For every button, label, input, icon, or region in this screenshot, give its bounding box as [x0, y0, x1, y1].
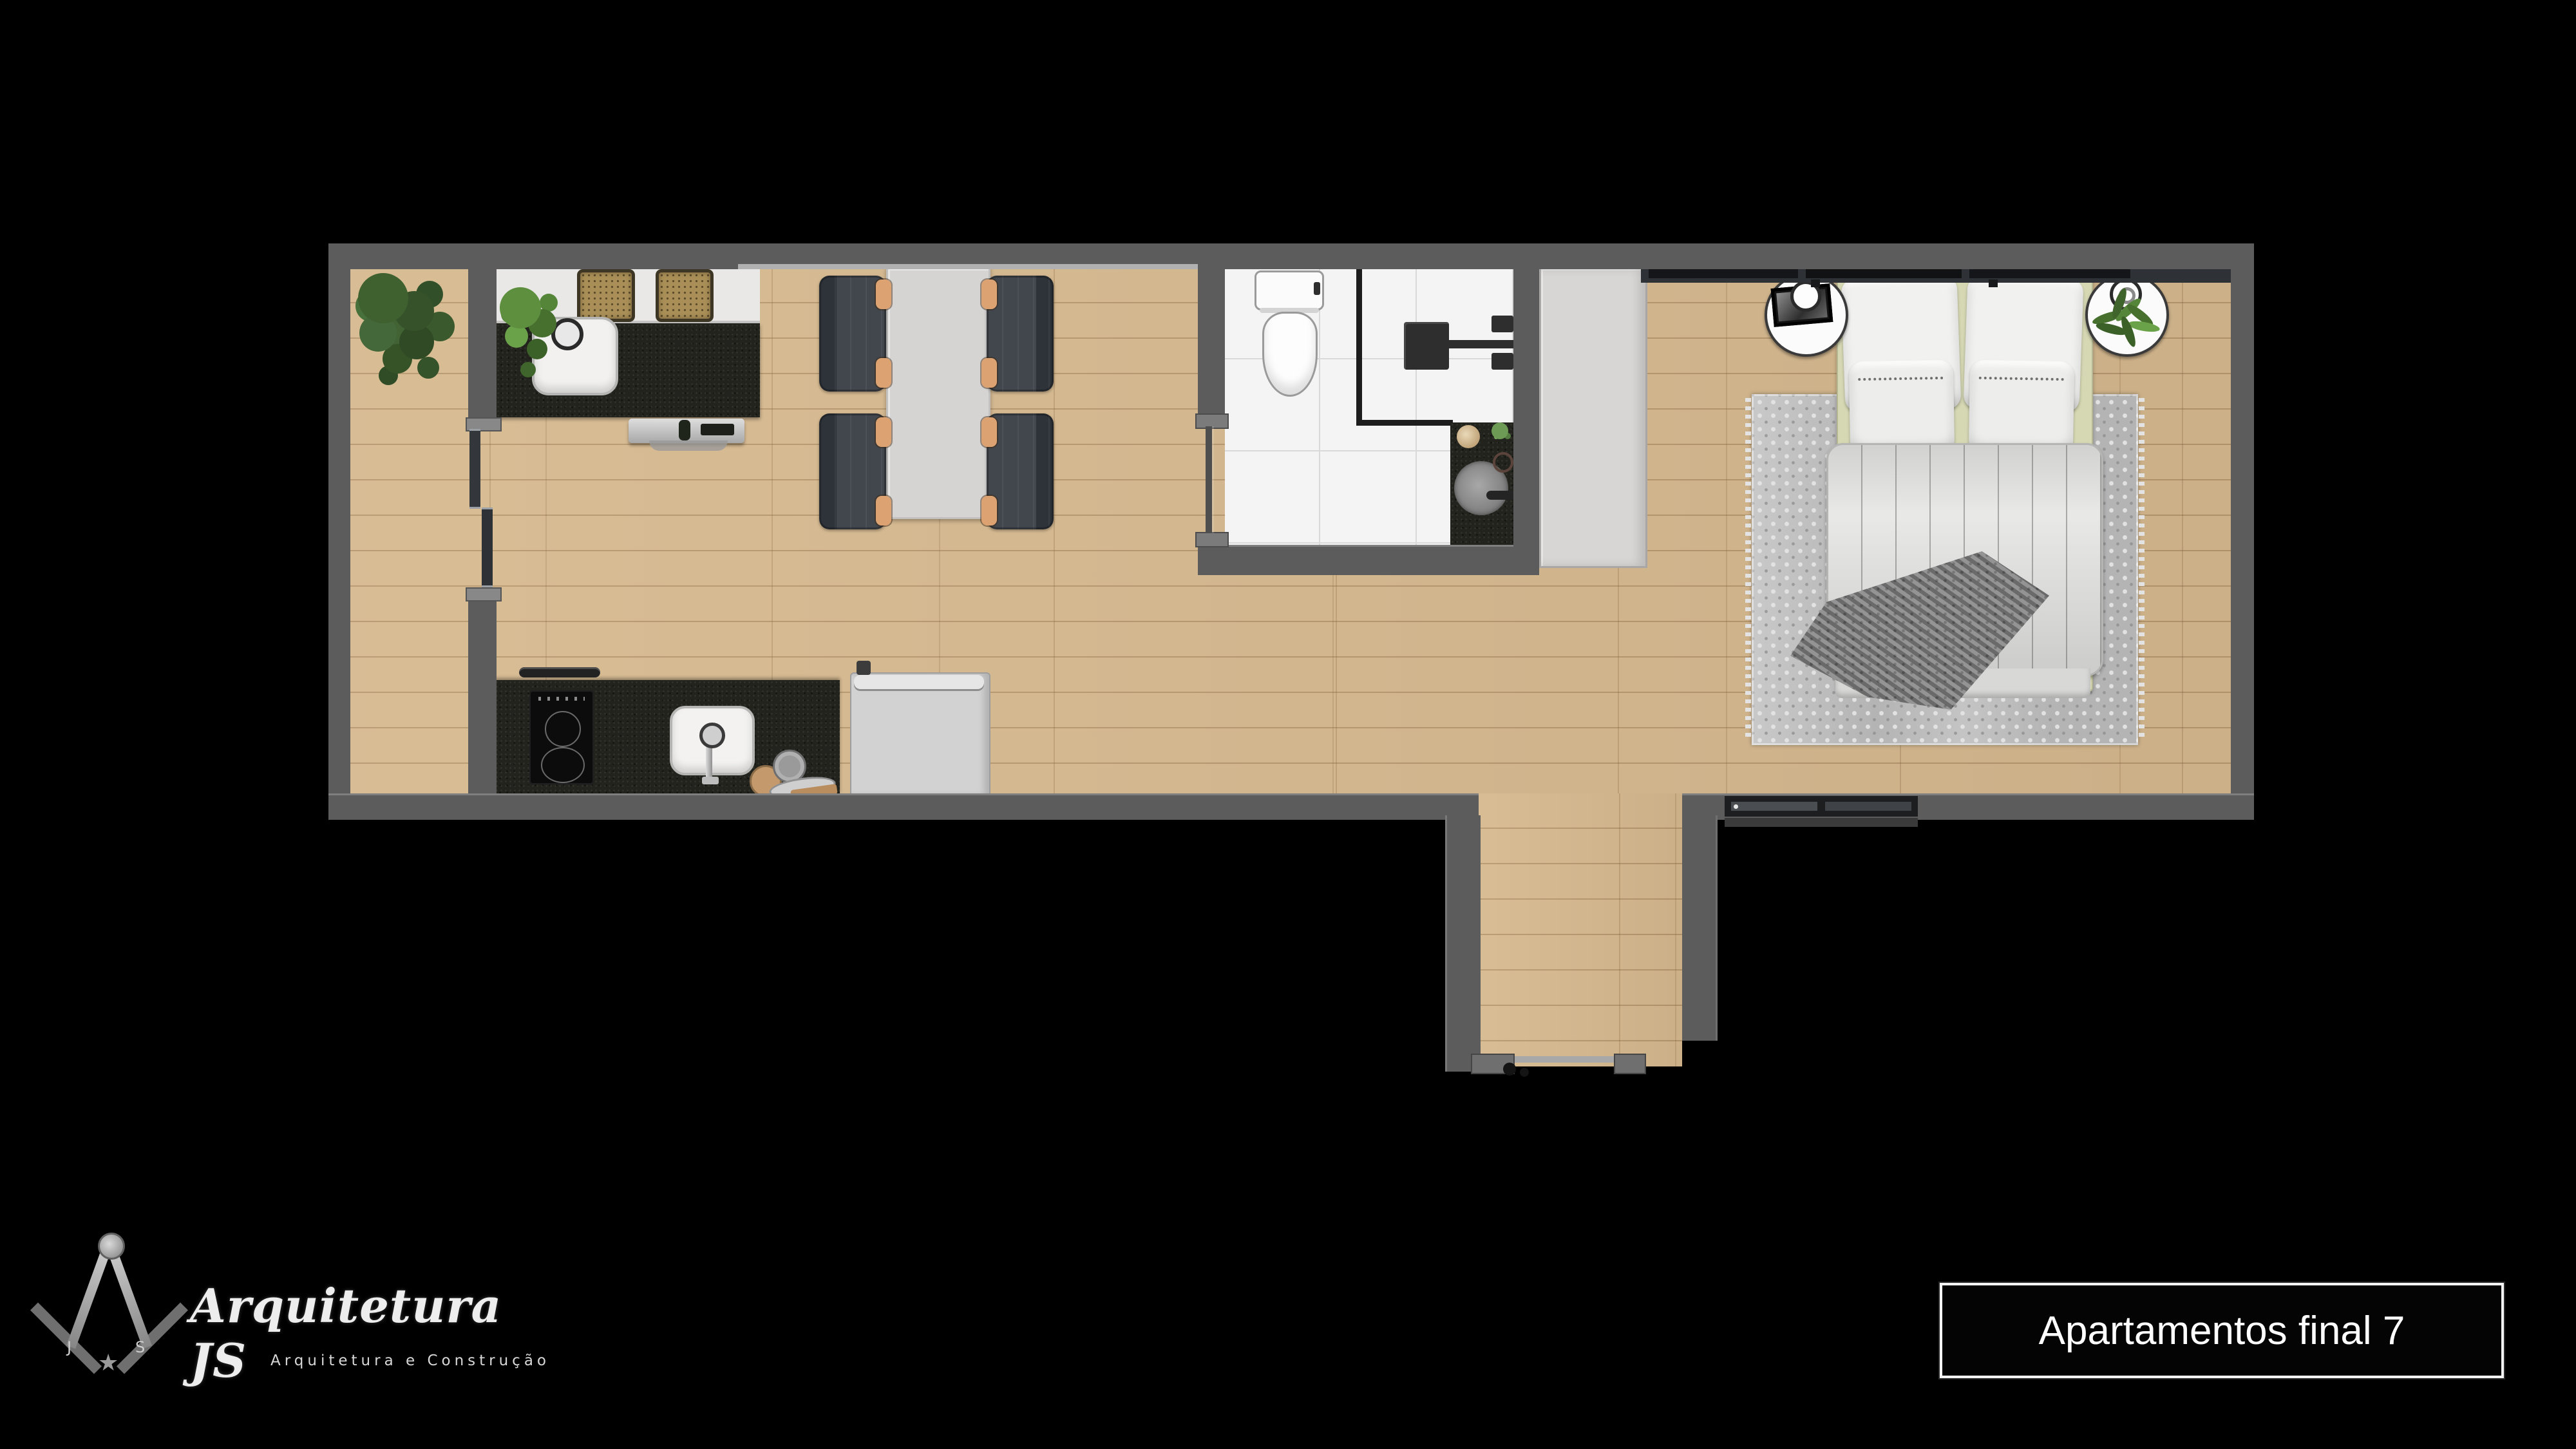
pillow-small [1969, 360, 2075, 456]
chair-armrest [876, 279, 891, 309]
hood-controls [701, 424, 734, 435]
chair-armrest [981, 496, 997, 526]
wall-top [328, 243, 2254, 269]
toilet [1255, 270, 1324, 397]
sill-line [738, 264, 1198, 269]
corridor-wall-right [1682, 815, 1718, 1041]
brand-name: Arquitetura JS [190, 1278, 551, 1388]
rug-fringe [2139, 398, 2145, 741]
wardrobe [1539, 267, 1647, 568]
hood-bottle [679, 420, 690, 440]
chair-armrest [876, 496, 891, 526]
island-faucet [551, 318, 583, 350]
compass-leg-icon [66, 1244, 113, 1349]
burner [545, 711, 581, 747]
refrigerator [850, 672, 990, 797]
cooktop-controls [538, 697, 585, 701]
pillow-stitch [1979, 377, 2064, 381]
balcony-sliding-door [469, 429, 480, 509]
toilet-flush-button [1314, 282, 1320, 295]
entry-door-knob [1503, 1063, 1516, 1075]
shower-glass-panel [1356, 268, 1362, 425]
bathroom-wall-bottom [1198, 545, 1539, 575]
dining-table [886, 267, 990, 519]
compass-hinge-icon [98, 1233, 125, 1260]
cooktop-handle [519, 667, 600, 677]
star-icon: ★ [98, 1351, 118, 1374]
vanity-faucet-ring [1493, 452, 1513, 473]
dining-chair [987, 276, 1054, 392]
rail-bracket [1989, 279, 1998, 287]
door-jamb [1195, 532, 1229, 547]
window-pane [1825, 802, 1911, 811]
chair-armrest [876, 358, 891, 388]
corridor-wall-left [1445, 815, 1481, 1072]
rug-fringe [1745, 398, 1751, 741]
kitchen-faucet-base [702, 777, 719, 784]
bathroom-wall-left [1198, 268, 1225, 415]
dining-chair [819, 276, 886, 392]
toilet-bowl [1262, 312, 1318, 397]
entry-door-knob [1520, 1068, 1529, 1077]
bar-stool [656, 269, 714, 322]
pillow-stitch [1858, 377, 1943, 381]
kitchen-faucet-knob [699, 723, 725, 748]
floor-plan-slide: J S ★ Arquitetura JS Arquitetura e Const… [0, 0, 2576, 1449]
soap-dish [1457, 425, 1480, 448]
masonic-square-icon [30, 1302, 102, 1374]
chair-armrest [981, 417, 997, 447]
shower-head [1404, 322, 1449, 370]
shower-valve [1492, 353, 1513, 370]
dining-chair [987, 413, 1054, 529]
wall-bottom-left [328, 793, 1479, 820]
balcony-divider-wall [468, 599, 497, 793]
nightstand-plant [2090, 291, 2161, 349]
shower-valve [1492, 316, 1513, 332]
brand-subtitle: Arquitetura e Construção [270, 1352, 550, 1369]
range-hood [629, 419, 744, 443]
title-box: Apartamentos final 7 [1940, 1283, 2504, 1378]
door-jamb [1614, 1054, 1646, 1074]
entry-threshold [1512, 1056, 1615, 1063]
chair-armrest [981, 279, 997, 309]
bathroom-wall-right [1513, 268, 1539, 573]
wall-left [328, 243, 350, 818]
hood-shade [649, 440, 728, 451]
dining-chair [819, 413, 886, 529]
kitchen-plant [500, 287, 541, 328]
refrigerator-knob [857, 661, 871, 675]
pillow-small [1849, 360, 1955, 456]
window-pane [1731, 802, 1817, 811]
monogram-letter-s: S [135, 1338, 145, 1356]
corridor-wood-floor [1479, 793, 1682, 1066]
wall-right [2231, 243, 2254, 818]
bedroom-window [1725, 796, 1918, 817]
monogram-letter-j: J [67, 1338, 71, 1356]
masonic-square-icon [117, 1302, 188, 1374]
vanity-faucet [1486, 491, 1515, 500]
chair-armrest [981, 358, 997, 388]
refrigerator-handle [854, 675, 984, 689]
title-text: Apartamentos final 7 [2039, 1308, 2405, 1354]
balcony-divider-wall [468, 268, 497, 417]
door-jamb [466, 587, 502, 601]
window-recess [1725, 818, 1918, 827]
rail-bracket [1811, 279, 1820, 287]
vanity-plant [1492, 422, 1508, 439]
chair-armrest [876, 417, 891, 447]
balcony-sliding-door [482, 507, 493, 587]
shower-glass-panel [1356, 420, 1453, 426]
window-handle [1734, 804, 1738, 809]
company-logo: J S ★ [39, 1231, 200, 1386]
balcony-plant [358, 273, 408, 323]
bathroom-sliding-door [1206, 426, 1212, 533]
bar-stool [577, 269, 635, 322]
door-jamb [1195, 413, 1229, 429]
burner [541, 747, 585, 783]
shower-arm [1448, 340, 1513, 348]
cooktop [529, 690, 594, 784]
